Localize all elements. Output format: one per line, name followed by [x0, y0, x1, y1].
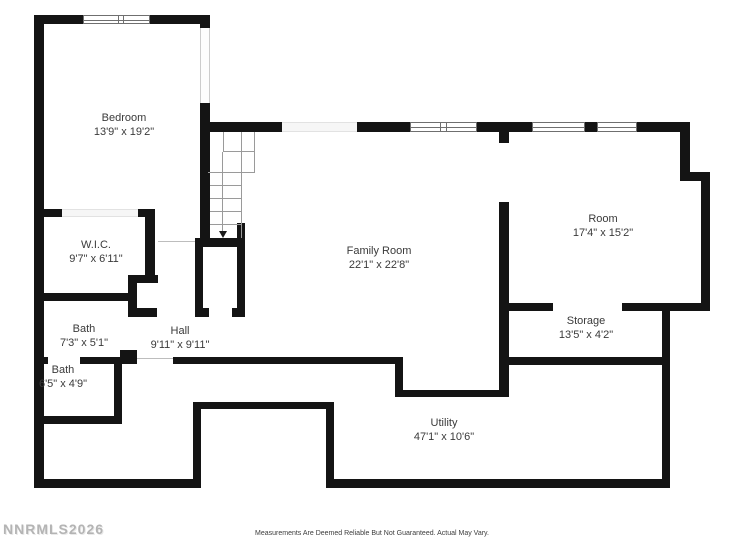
wall [34, 293, 128, 301]
wall [128, 308, 157, 317]
wall [499, 128, 509, 143]
room-label-room: Room 17'4" x 15'2" [573, 213, 633, 240]
room-label-utility: Utility 47'1" x 10'6" [414, 417, 474, 444]
wall [232, 308, 245, 317]
doorway-line [137, 358, 173, 359]
wall [662, 303, 670, 488]
wall [200, 122, 282, 132]
window-mullion [123, 15, 124, 24]
room-dims: 13'9" x 19'2" [94, 126, 154, 140]
room-label-bath-2: Bath 6'5" x 4'9" [39, 364, 87, 391]
window [410, 122, 477, 132]
wall [701, 172, 710, 311]
stair-line [223, 151, 255, 152]
room-name: Utility [414, 417, 474, 431]
room-label-storage: Storage 13'5" x 4'2" [559, 315, 613, 342]
room-dims: 9'7" x 6'11" [69, 253, 122, 267]
wall [200, 15, 210, 28]
window [83, 15, 150, 24]
stair-tread [210, 198, 241, 199]
wall [120, 350, 137, 364]
wall [195, 308, 209, 317]
room-dims: 17'4" x 15'2" [573, 227, 633, 241]
wall [173, 357, 398, 364]
wall [326, 402, 334, 488]
wall [34, 357, 48, 364]
room-name: Bath [60, 323, 108, 337]
window-mullion [118, 15, 119, 24]
room-dims: 47'1" x 10'6" [414, 431, 474, 445]
room-dims: 7'3" x 5'1" [60, 337, 108, 351]
wall [34, 15, 83, 24]
room-name: Hall [151, 325, 210, 339]
wall [195, 238, 203, 317]
stair-tread [210, 185, 241, 186]
room-name: Room [573, 213, 633, 227]
room-name: Family Room [347, 245, 412, 259]
doorway-line [158, 241, 195, 242]
wall-opening [282, 122, 357, 132]
wall [503, 357, 670, 365]
room-label-family-room: Family Room 22'1" x 22'8" [347, 245, 412, 272]
room-label-hall: Hall 9'11" x 9'11" [151, 325, 210, 352]
stair-tread [210, 224, 241, 225]
mls-watermark: NNRMLS2026 [3, 521, 104, 537]
wall [585, 122, 597, 132]
room-dims: 22'1" x 22'8" [347, 259, 412, 273]
floor-plan: Bedroom 13'9" x 19'2" W.I.C. 9'7" x 6'11… [0, 0, 747, 560]
wall [34, 479, 200, 488]
wall [508, 303, 553, 311]
stair-line [254, 132, 255, 173]
room-dims: 13'5" x 4'2" [559, 329, 613, 343]
window [532, 122, 585, 132]
wall [499, 202, 509, 397]
room-label-wic: W.I.C. 9'7" x 6'11" [69, 239, 122, 266]
room-dims: 6'5" x 4'9" [39, 378, 87, 392]
window-mullion [446, 122, 447, 132]
wall [34, 416, 122, 424]
window [597, 122, 637, 132]
stair-tread [208, 172, 255, 173]
wall [193, 402, 201, 488]
room-dims: 9'11" x 9'11" [151, 339, 210, 353]
room-label-bedroom: Bedroom 13'9" x 19'2" [94, 112, 154, 139]
wall [395, 390, 506, 397]
wall-opening [200, 28, 210, 103]
wall [326, 479, 670, 488]
room-name: Bedroom [94, 112, 154, 126]
wall [145, 209, 155, 283]
wall [114, 363, 122, 420]
stair-line [241, 132, 242, 238]
stair-tread [210, 211, 241, 212]
wall-opening [62, 209, 138, 217]
room-name: W.I.C. [69, 239, 122, 253]
room-name: Bath [39, 364, 87, 378]
wall [34, 209, 62, 217]
wall [357, 122, 410, 132]
room-name: Storage [559, 315, 613, 329]
stair-line [223, 132, 224, 152]
stair-direction-line [222, 152, 223, 232]
disclaimer-text: Measurements Are Deemed Reliable But Not… [255, 530, 489, 537]
room-label-bath-1: Bath 7'3" x 5'1" [60, 323, 108, 350]
window-mullion [440, 122, 441, 132]
wall [193, 402, 333, 409]
stair-down-arrow-icon [219, 231, 227, 238]
